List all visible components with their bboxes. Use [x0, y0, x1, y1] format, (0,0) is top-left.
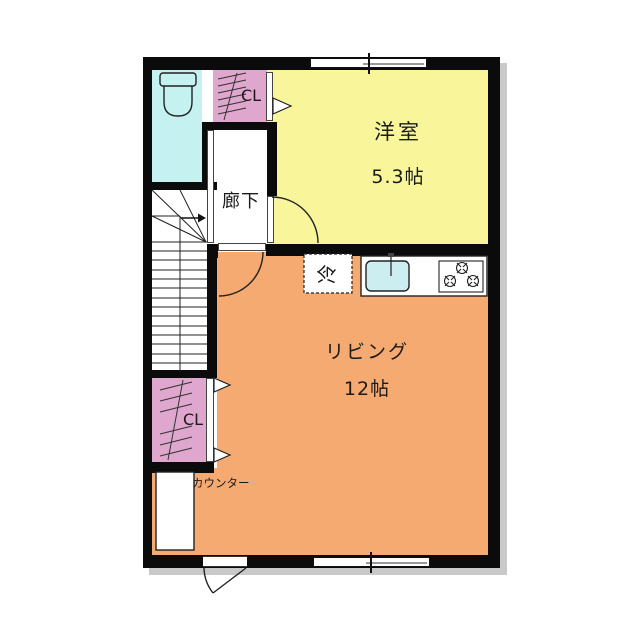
entry-door-icon — [204, 568, 246, 593]
folding-door-icon-top-closet — [273, 98, 291, 114]
folding-door-icon-bottom-closet-1 — [214, 378, 230, 392]
western-room-name: 洋室 — [338, 122, 458, 143]
floorplan: 洋室 5.3帖 リビング 12帖 廊下 CL CL カウンター 冷 — [0, 0, 640, 640]
door-arc-hall-living — [219, 252, 263, 296]
hallway-name: 廊下 — [210, 193, 272, 211]
toilet-icon — [160, 73, 196, 116]
counter-label: カウンター — [192, 478, 252, 490]
door-arc-hall-western — [272, 197, 318, 243]
western-room-size: 5.3帖 — [338, 168, 458, 187]
closet-top-label: CL — [233, 88, 269, 104]
closet-bottom-label: CL — [175, 412, 211, 428]
folding-door-icon-bottom-closet-2 — [214, 448, 230, 462]
counter-bar — [156, 472, 194, 550]
plan-linework — [0, 0, 640, 640]
fridge-label: 冷 — [317, 263, 339, 285]
living-room-name: リビング — [307, 343, 427, 362]
living-room-size: 12帖 — [307, 380, 427, 399]
stove-icon — [439, 261, 483, 292]
